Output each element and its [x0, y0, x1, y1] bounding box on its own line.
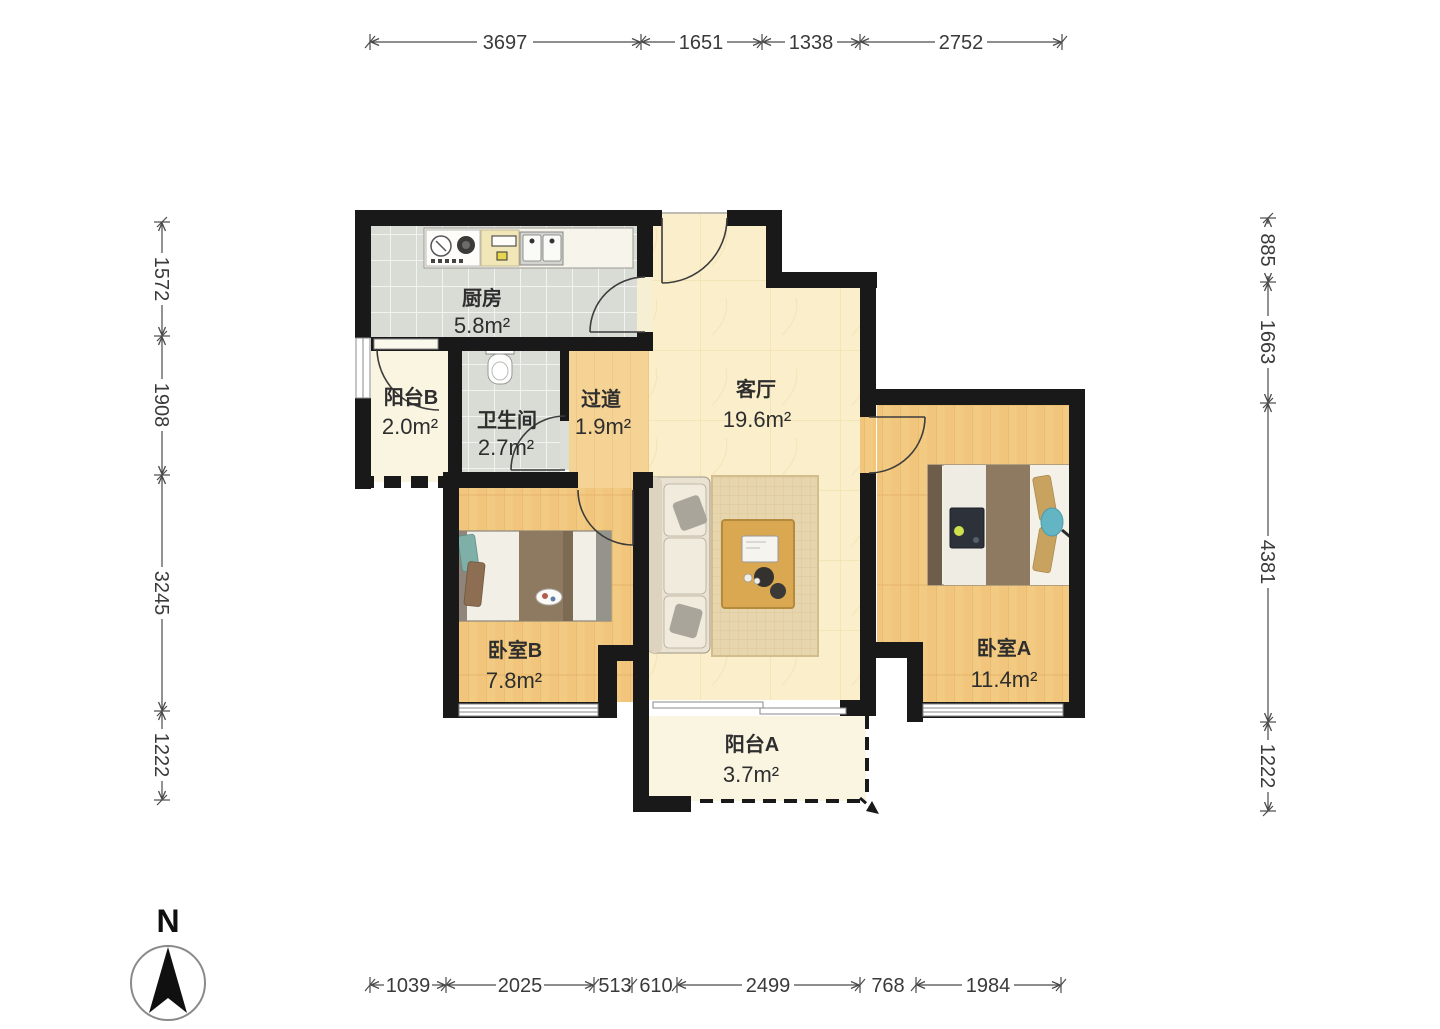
hallway-area: 1.9m²: [575, 414, 631, 439]
bed-a-icon: [928, 465, 1075, 585]
dim-bottom-7: 1984: [966, 975, 1011, 997]
balcony-b-area: 2.0m²: [382, 414, 438, 439]
compass-icon: N: [131, 903, 205, 1020]
sofa-icon: [648, 477, 710, 653]
bedroom-a-door-gap: [860, 417, 876, 473]
coffee-table-icon: [722, 520, 794, 608]
living-area: 19.6m²: [723, 407, 791, 432]
bedroom-a-label: 卧室A: [977, 636, 1031, 660]
bathroom-area: 2.7m²: [478, 435, 534, 460]
bedroom-b-label: 卧室B: [488, 638, 542, 662]
balcony-a-area: 3.7m²: [723, 762, 779, 787]
bathroom-door-gap: [560, 421, 569, 470]
dim-bottom-3: 513: [598, 975, 631, 997]
living-label: 客厅: [735, 377, 776, 401]
dim-left-3: 3245: [150, 571, 172, 616]
balcony-a-floor: [649, 716, 866, 801]
room-bathroom: 卫生间 2.7m²: [477, 409, 537, 460]
dim-right-4: 1222: [1256, 744, 1278, 789]
dimension-right: 885 1663 4381 1222: [1256, 213, 1278, 816]
dim-top-1: 3697: [483, 32, 528, 54]
dim-bottom-2: 2025: [498, 975, 543, 997]
kitchen-label: 厨房: [462, 286, 502, 310]
microwave-icon: [492, 236, 516, 246]
bed-b-icon: [455, 531, 611, 621]
dim-right-3: 4381: [1256, 540, 1278, 585]
kitchen-counter-icon: [424, 228, 633, 268]
dim-top-2: 1651: [679, 32, 724, 54]
dimension-left: 1572 1908 3245 1222: [150, 217, 172, 805]
bedroom-a-window: [923, 704, 1063, 716]
dim-bottom-4: 610: [639, 975, 672, 997]
balcony-b-window: [356, 338, 370, 398]
balcony-a-label: 阳台A: [725, 732, 779, 756]
compass-north-label: N: [156, 903, 179, 939]
dim-top-3: 1338: [789, 32, 834, 54]
bathroom-label: 卫生间: [477, 409, 537, 432]
dim-top-4: 2752: [939, 32, 984, 54]
bedroom-b-door-gap: [578, 472, 633, 488]
bedroom-b-area: 7.8m²: [486, 668, 542, 693]
dim-bottom-5: 2499: [746, 975, 791, 997]
kitchen-area: 5.8m²: [454, 313, 510, 338]
dim-right-1: 885: [1256, 233, 1278, 266]
floor-plan: 厨房 5.8m² 阳台B 2.0m² 卫生间 2.7m² 过道 1.9m² 客厅…: [0, 0, 1440, 1024]
hallway-floor: [569, 351, 649, 472]
dim-right-2: 1663: [1256, 320, 1278, 365]
dim-bottom-1: 1039: [386, 975, 431, 997]
dim-left-1: 1572: [150, 257, 172, 302]
bedroom-a-area: 11.4m²: [971, 667, 1038, 692]
dim-bottom-6: 768: [871, 975, 904, 997]
balcony-b-label: 阳台B: [384, 385, 438, 409]
balcony-a-sliding-door: [653, 702, 846, 714]
kitchen-door-gap: [637, 277, 653, 332]
hallway-label: 过道: [581, 387, 621, 411]
entry-threshold: [662, 212, 727, 226]
dim-left-2: 1908: [150, 383, 172, 428]
bedroom-b-window: [459, 704, 598, 716]
dimension-top: 3697 1651 1338 2752: [365, 32, 1067, 54]
dim-left-4: 1222: [150, 733, 172, 778]
dimension-bottom: 1039 2025 513 610 2499 768 1984: [365, 975, 1066, 997]
